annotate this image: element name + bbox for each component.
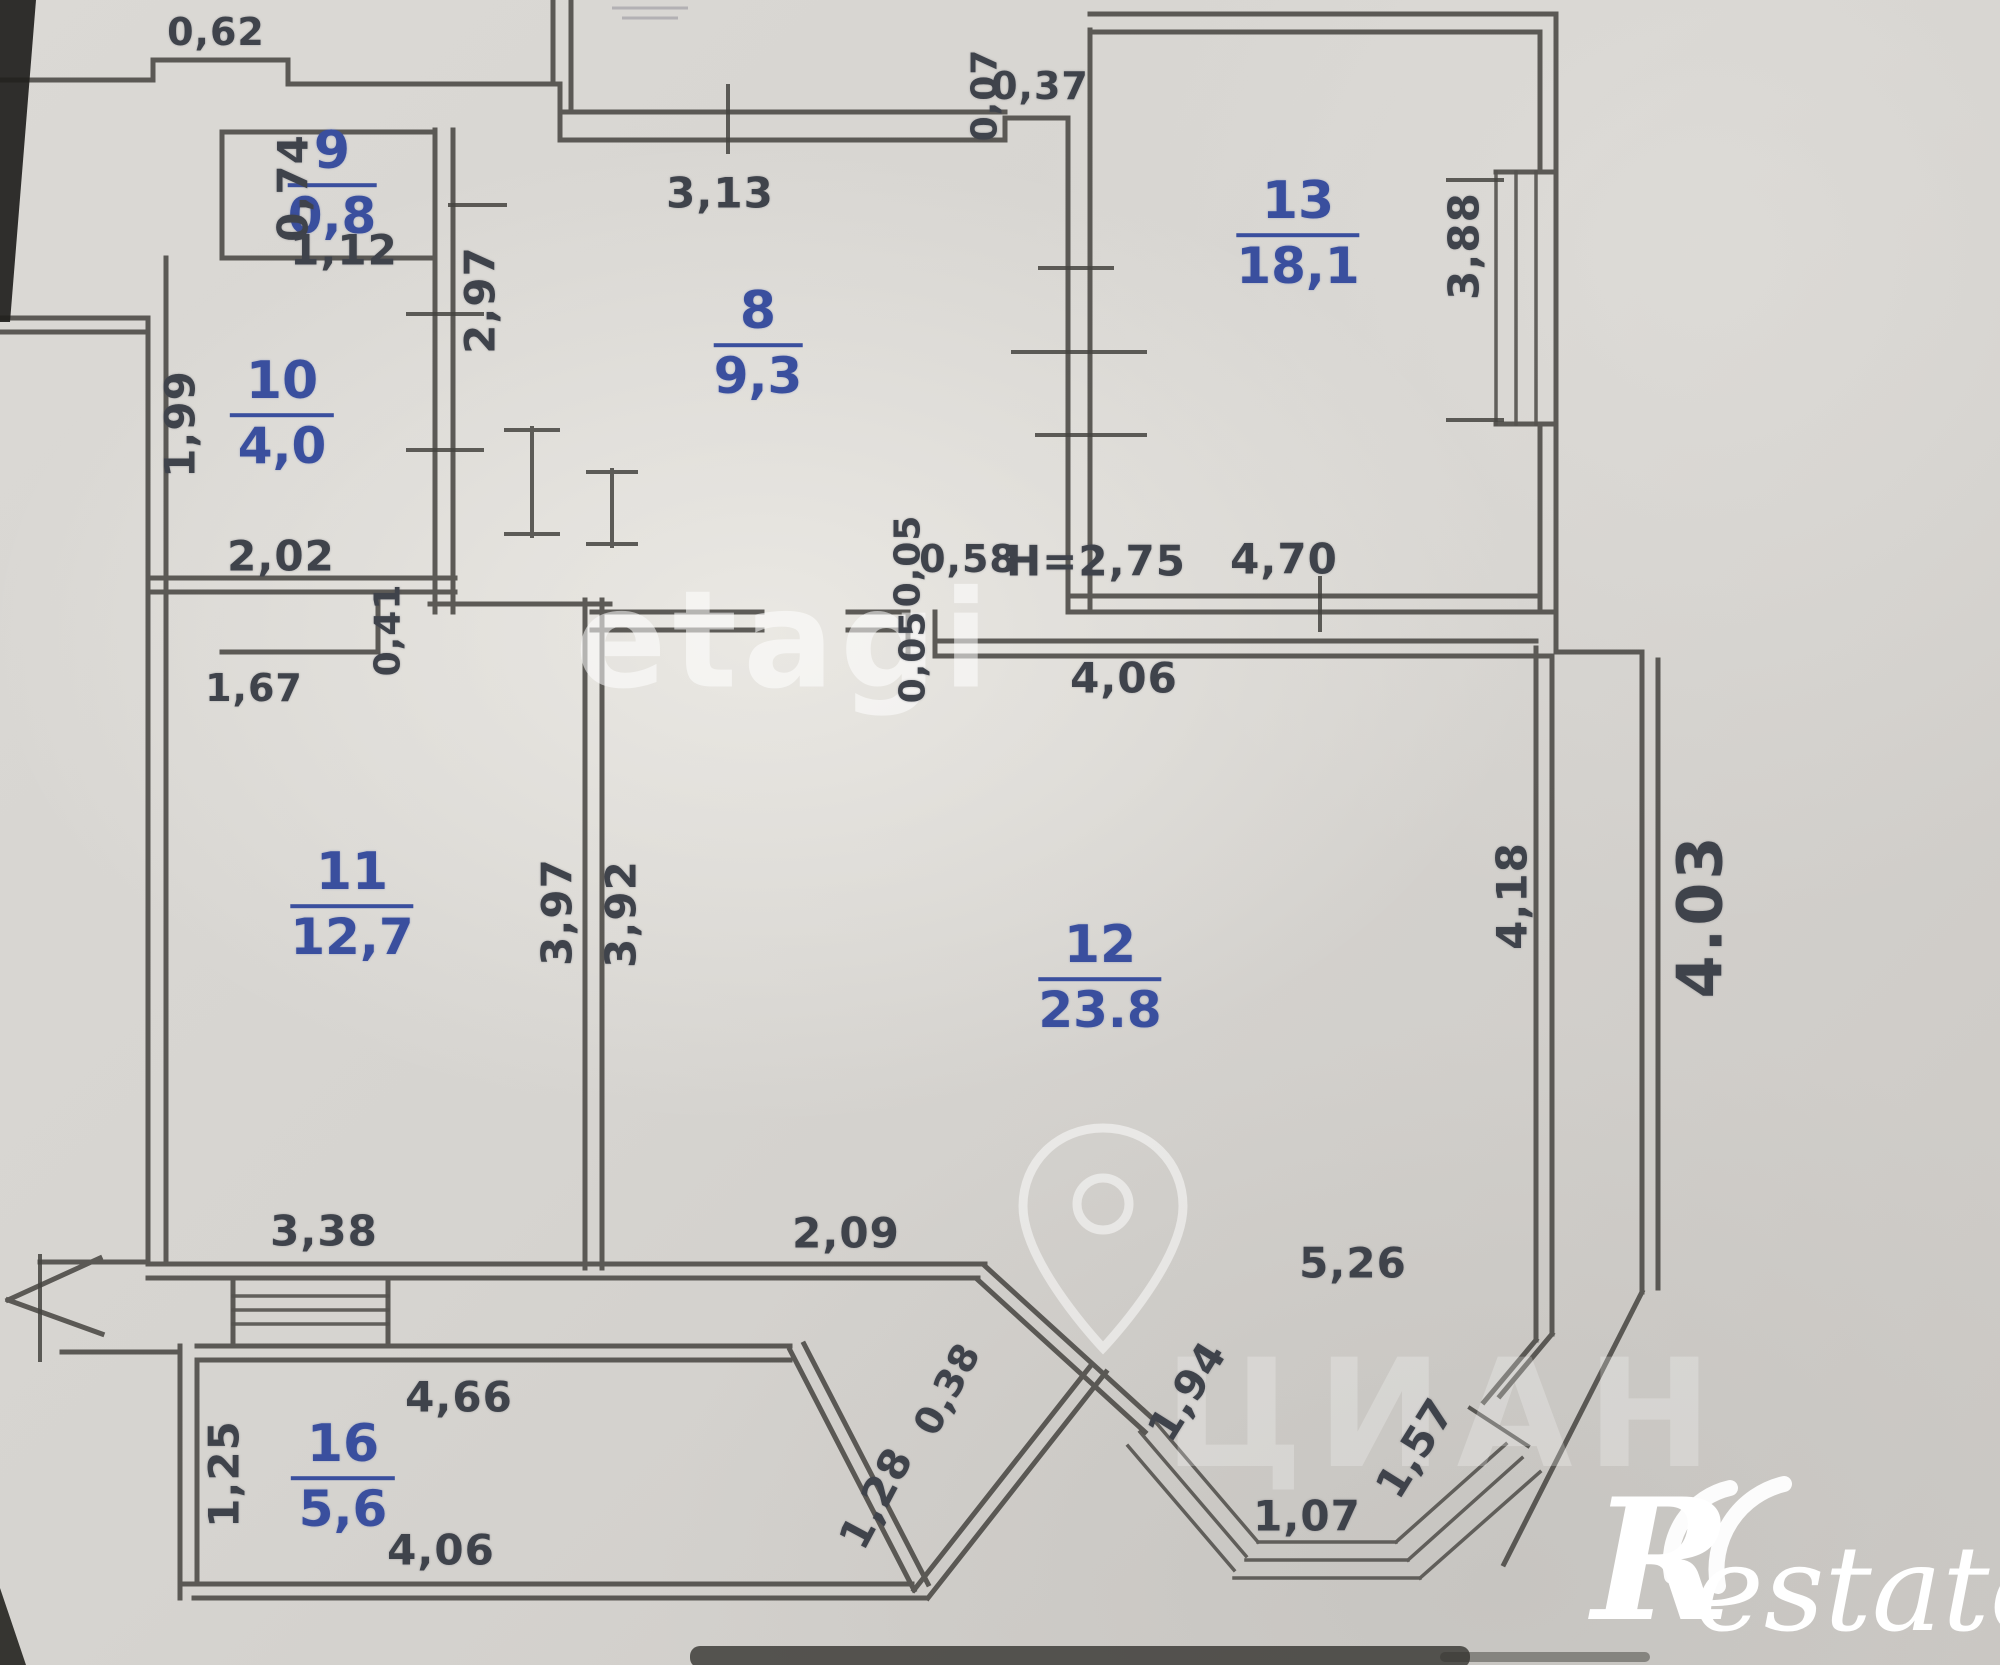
room-16-number: 16 bbox=[291, 1417, 395, 1480]
dim-1-07: 1,07 bbox=[1253, 1492, 1361, 1541]
dim-4-06-top: 4,06 bbox=[1070, 654, 1178, 703]
dim-0-05-b: 0,05 bbox=[893, 611, 934, 704]
dim-2-02: 2,02 bbox=[227, 532, 335, 581]
dim-3-38: 3,38 bbox=[270, 1207, 378, 1256]
dim-0-58: 0,58 bbox=[919, 537, 1017, 581]
room-label-13: 13 18,1 bbox=[1236, 174, 1359, 294]
dim-0-41: 0,41 bbox=[368, 584, 409, 677]
dim-3-97: 3,97 bbox=[533, 858, 582, 966]
dim-2-09: 2,09 bbox=[792, 1209, 900, 1258]
room-13-number: 13 bbox=[1236, 174, 1359, 237]
dim-2-97: 2,97 bbox=[456, 246, 505, 354]
restate-logo-text: estate bbox=[1694, 1530, 2000, 1648]
room-label-10: 10 4,0 bbox=[230, 354, 334, 474]
room-label-16: 16 5,6 bbox=[291, 1417, 395, 1537]
room-11-area: 12,7 bbox=[290, 908, 413, 965]
restate-logo: R estate bbox=[1586, 1478, 1996, 1658]
dim-ceiling-height: H=2,75 bbox=[1006, 537, 1186, 586]
map-pin-watermark-icon bbox=[1023, 1128, 1183, 1348]
dim-1-67: 1,67 bbox=[205, 666, 303, 710]
dim-3-88: 3,88 bbox=[1440, 192, 1489, 300]
dim-1-25: 1,25 bbox=[200, 1420, 249, 1528]
room-12-area: 23.8 bbox=[1038, 981, 1161, 1038]
dim-4-03: 4.03 bbox=[1664, 834, 1737, 999]
room-10-area: 4,0 bbox=[230, 417, 334, 474]
dim-5-26: 5,26 bbox=[1299, 1239, 1407, 1288]
room-label-8: 8 9,3 bbox=[714, 284, 803, 404]
dim-1-99: 1,99 bbox=[156, 370, 205, 478]
dim-4-70: 4,70 bbox=[1230, 535, 1338, 584]
room-16-area: 5,6 bbox=[291, 1480, 395, 1537]
dim-4-66: 4,66 bbox=[405, 1373, 513, 1422]
dim-0-62: 0,62 bbox=[167, 10, 265, 54]
room-label-11: 11 12,7 bbox=[290, 845, 413, 965]
room-10-number: 10 bbox=[230, 354, 334, 417]
floor-plan-scan: etagi ЦИАН R estate 9 0,8 10 4,0 8 9,3 1… bbox=[0, 0, 2000, 1665]
cut-off-text-remnant bbox=[612, 8, 688, 18]
room-11-number: 11 bbox=[290, 845, 413, 908]
dim-3-92: 3,92 bbox=[597, 860, 646, 968]
room-13-area: 18,1 bbox=[1236, 237, 1359, 294]
room-12-number: 12 bbox=[1038, 918, 1161, 981]
dim-4-06-bottom: 4,06 bbox=[387, 1526, 495, 1575]
room-8-area: 9,3 bbox=[714, 347, 803, 404]
dim-3-13: 3,13 bbox=[666, 169, 774, 218]
dim-1-12: 1,12 bbox=[290, 226, 398, 275]
dim-0-37: 0,37 bbox=[991, 64, 1089, 108]
dim-4-18: 4,18 bbox=[1488, 842, 1537, 950]
room-label-12: 12 23.8 bbox=[1038, 918, 1161, 1038]
room-8-number: 8 bbox=[714, 284, 803, 347]
